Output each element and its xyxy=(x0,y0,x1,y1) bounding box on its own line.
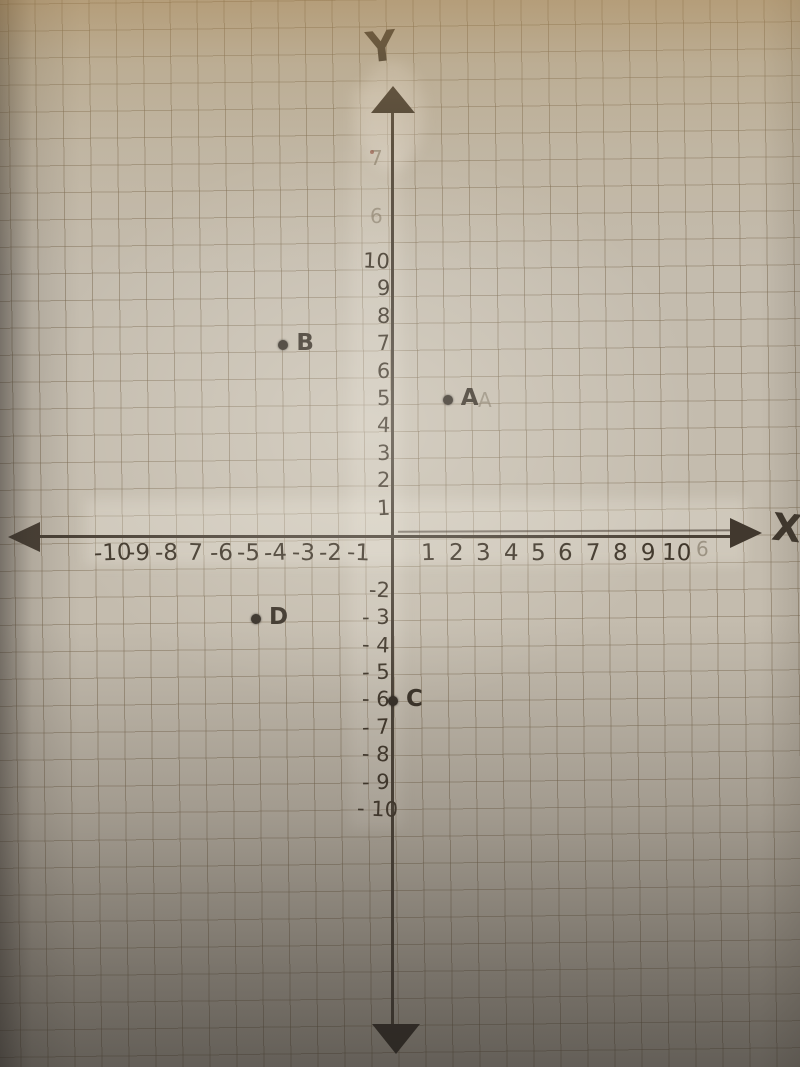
point-label-B: B xyxy=(296,330,314,356)
y-axis-arrow-down-icon xyxy=(372,1024,420,1054)
point-label-D: D xyxy=(269,604,288,630)
y-axis-line xyxy=(391,99,394,1035)
point-label-A: A xyxy=(461,385,479,411)
paper-speck xyxy=(370,150,374,154)
y-axis-label: Y xyxy=(364,21,399,73)
x-axis-arrow-left-icon xyxy=(8,522,40,552)
x-axis-label: X xyxy=(770,505,800,552)
point-dot-A xyxy=(443,395,453,405)
point-label-C: C xyxy=(406,686,423,712)
y-axis-arrow-up-icon xyxy=(371,86,415,113)
photo-of-hand-drawn-coordinate-plane: Y X -10-9-87-6-5-4-3-2-112345678910 1098… xyxy=(0,0,800,1067)
x-axis-line xyxy=(18,535,742,538)
paper-smudge-vertical xyxy=(350,85,402,830)
x-axis-arrow-right-icon xyxy=(730,518,762,548)
